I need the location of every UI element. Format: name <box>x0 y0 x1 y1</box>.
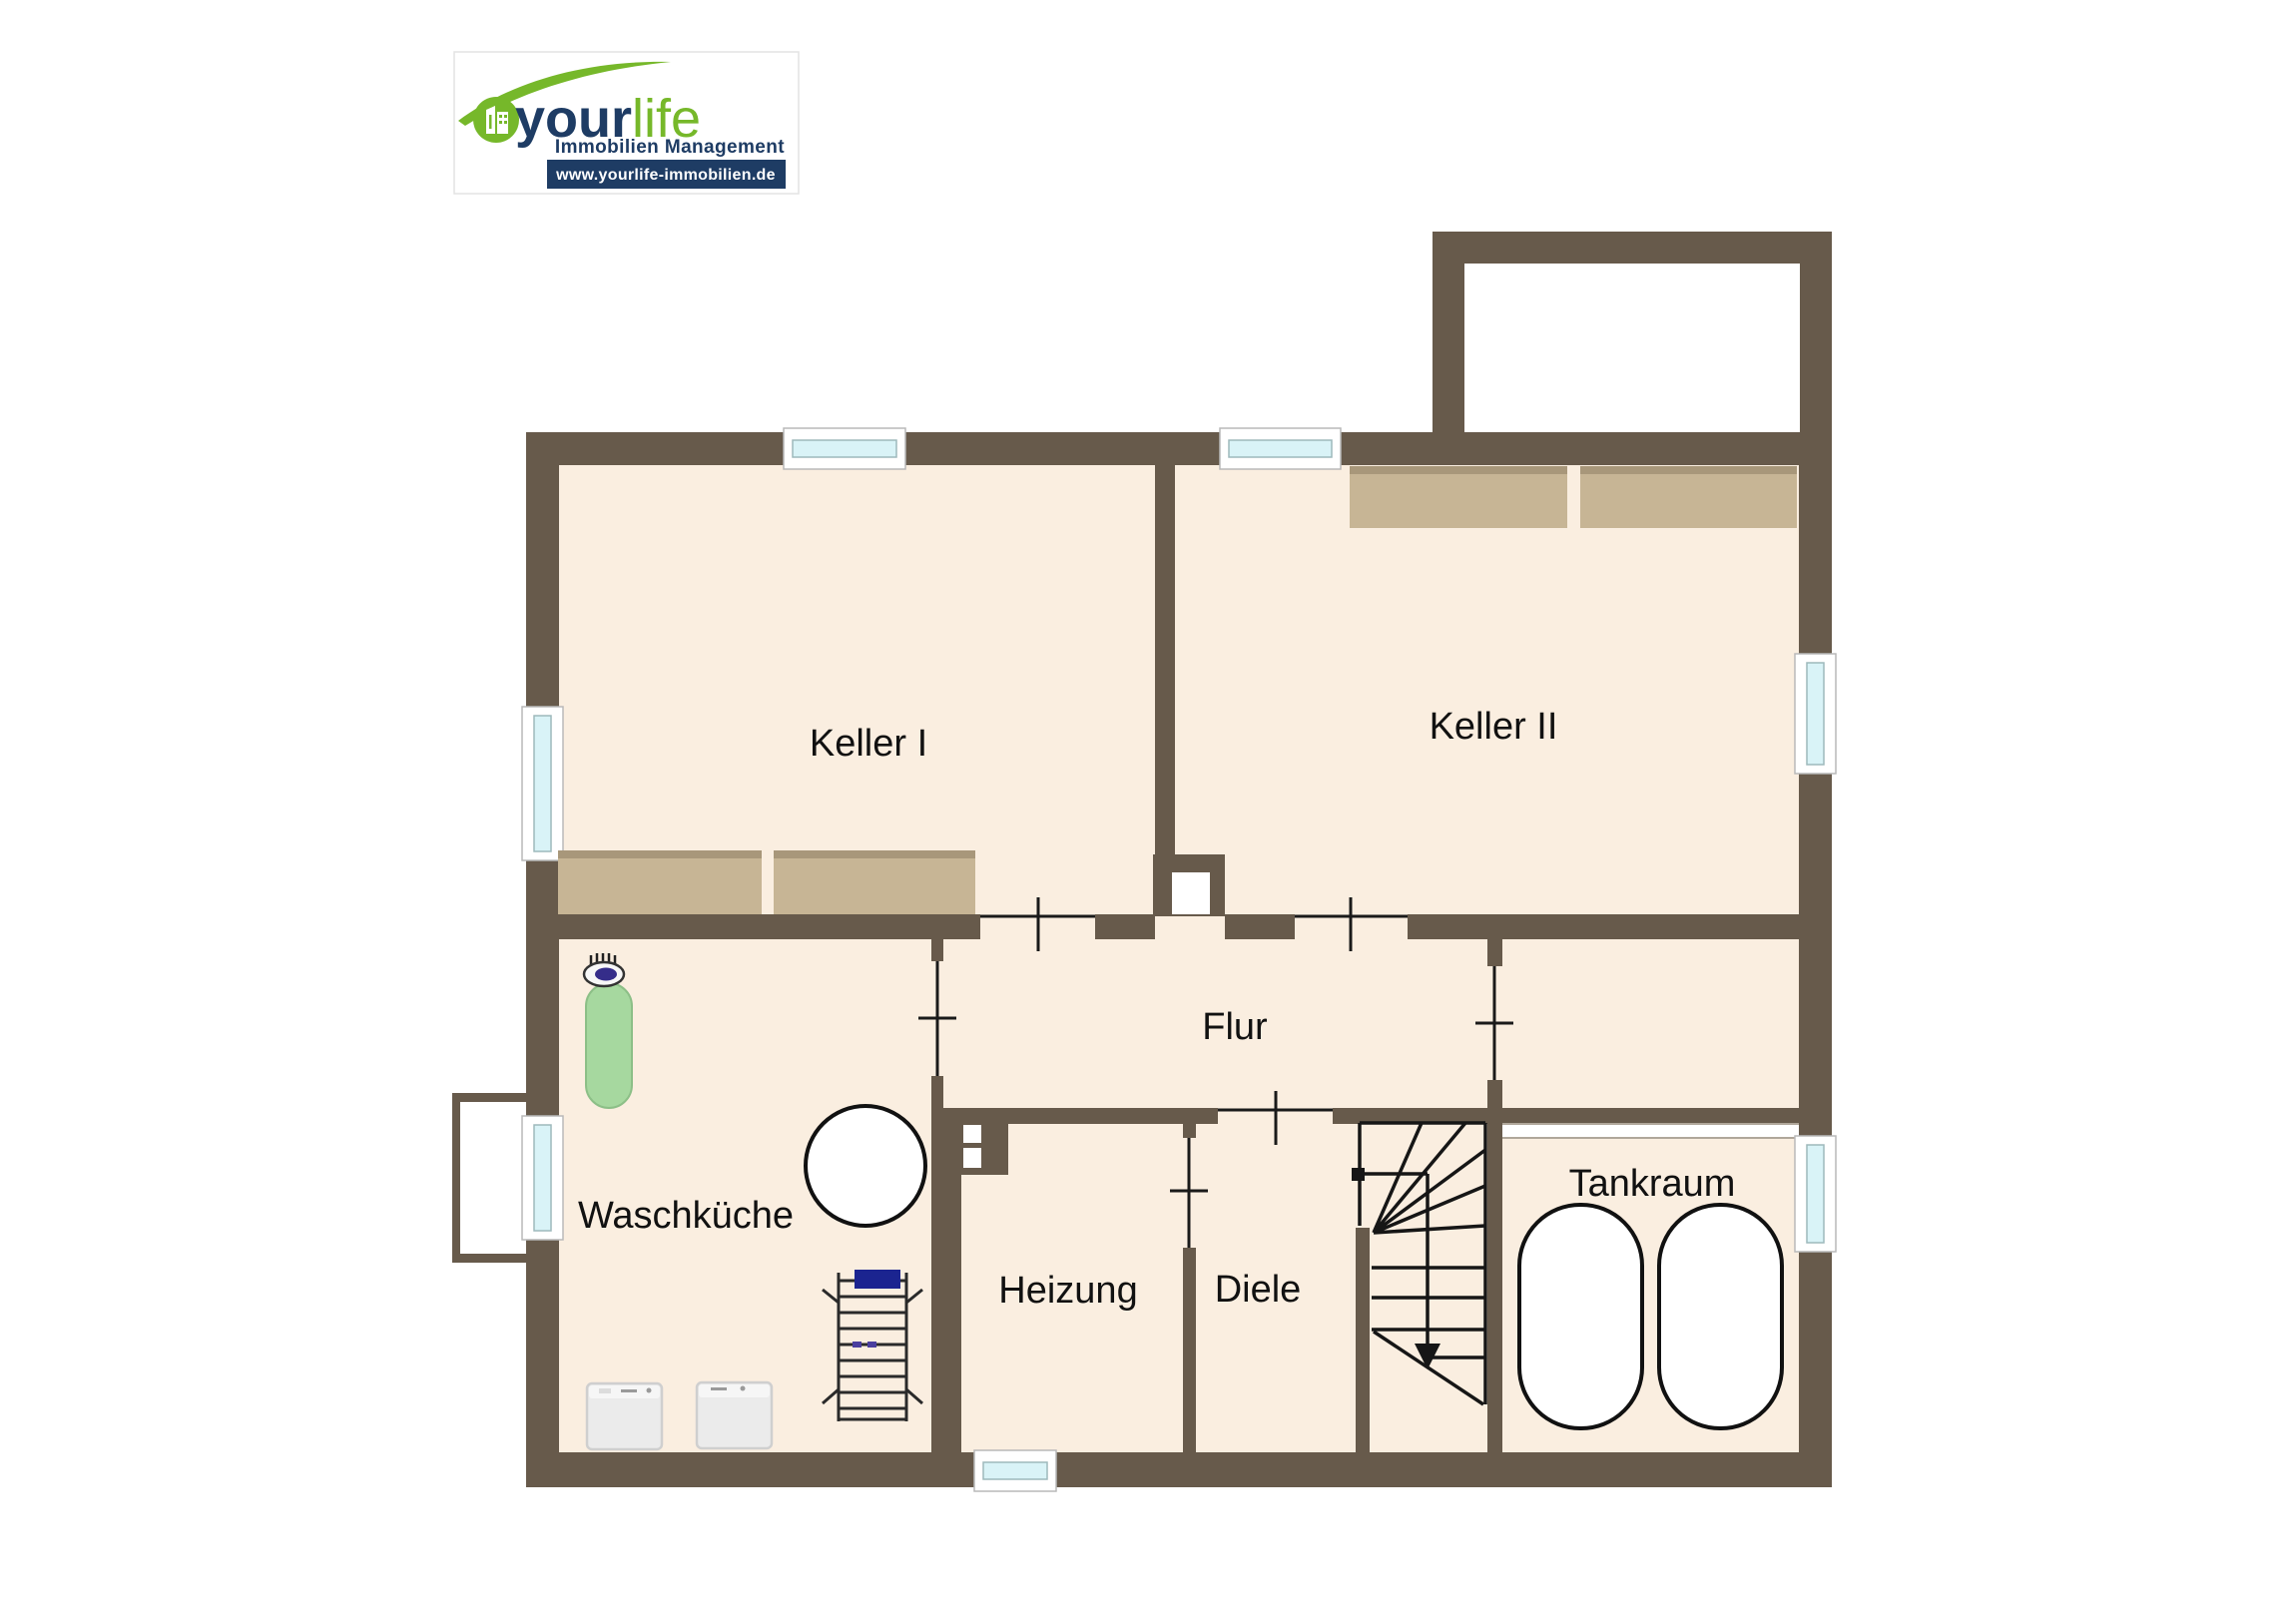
chimney-flue <box>963 1148 981 1168</box>
room-label-keller1: Keller I <box>810 723 927 765</box>
washing-machine <box>697 1382 772 1448</box>
ironing-board <box>584 953 632 1108</box>
tankraum-opening <box>1502 1124 1799 1138</box>
basement-floorplan: Keller I Keller II Flur Waschküche Heizu… <box>0 0 2296 1623</box>
room-label-keller2: Keller II <box>1430 706 1558 748</box>
round-table <box>806 1106 925 1226</box>
room-label-heizung: Heizung <box>998 1270 1137 1312</box>
floorplan-canvas: Keller I Keller II Flur Waschküche Heizu… <box>0 0 2296 1623</box>
logo-subtitle: Immobilien Management <box>555 137 785 158</box>
washing-machine <box>587 1383 662 1449</box>
room-label-tankraum: Tankraum <box>1569 1163 1736 1205</box>
chimney-flue <box>1172 872 1210 914</box>
logo-url: www.yourlife-immobilien.de <box>555 167 776 184</box>
chimney-flue <box>963 1125 981 1143</box>
shelf <box>1350 466 1567 528</box>
shelf <box>558 850 762 914</box>
logo-building-icon <box>473 97 519 143</box>
oil-tank <box>1519 1205 1642 1428</box>
stair-newel <box>1352 1168 1365 1181</box>
shelf <box>1580 466 1797 528</box>
logo: yourlife Immobilien Management www.yourl… <box>454 52 799 194</box>
oil-tank <box>1659 1205 1782 1428</box>
room-label-flur: Flur <box>1202 1006 1268 1048</box>
top-right-annex-interior <box>1464 264 1800 432</box>
left-lightwell-interior <box>460 1102 526 1254</box>
room-label-diele: Diele <box>1215 1269 1302 1311</box>
towel <box>855 1270 900 1289</box>
room-label-waschkueche: Waschküche <box>578 1195 794 1237</box>
shelf <box>774 850 975 914</box>
